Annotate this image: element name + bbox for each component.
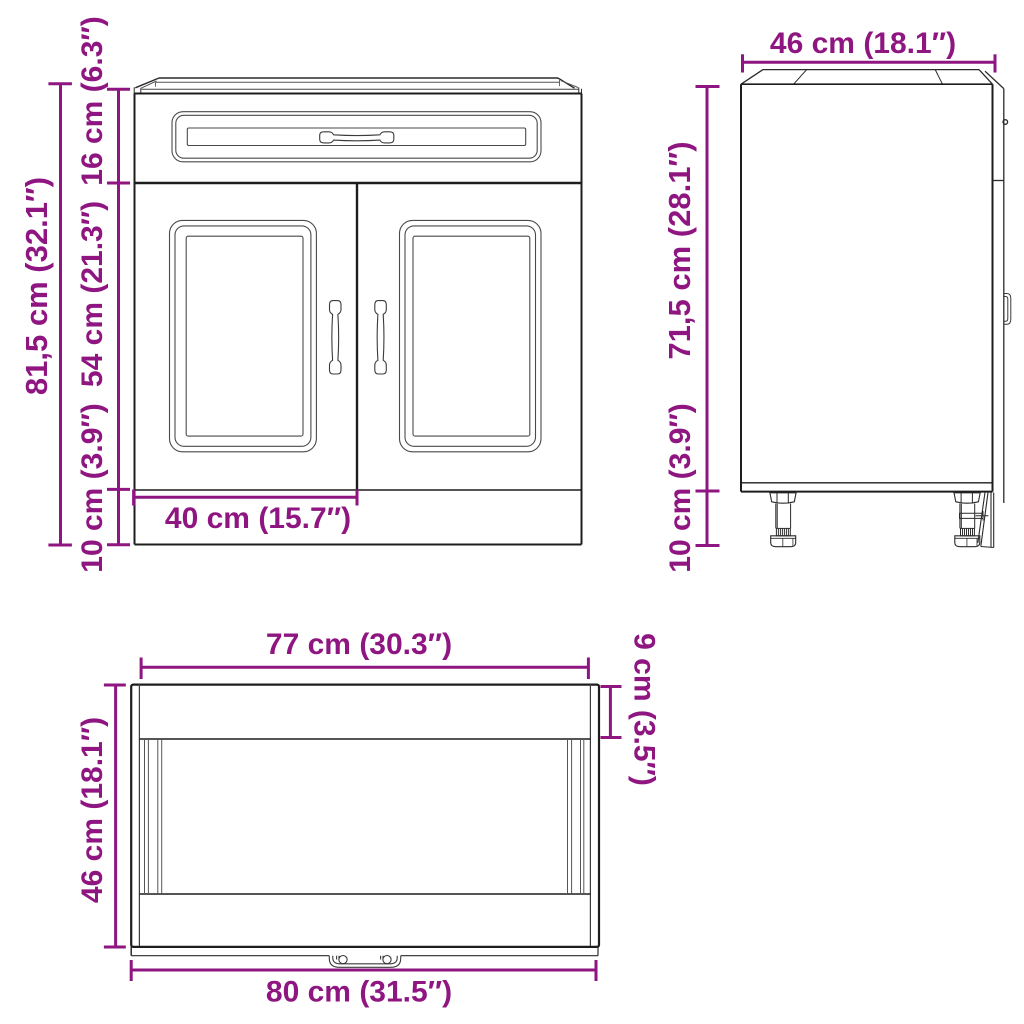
svg-text:54 cm (21.3″): 54 cm (21.3″) xyxy=(76,201,109,387)
svg-text:80 cm (31.5″): 80 cm (31.5″) xyxy=(266,976,452,1009)
svg-text:9 cm (3.5″): 9 cm (3.5″) xyxy=(628,633,661,786)
svg-text:77 cm (30.3″): 77 cm (30.3″) xyxy=(266,628,452,661)
svg-text:46 cm (18.1″): 46 cm (18.1″) xyxy=(76,717,109,903)
svg-text:16 cm (6.3″): 16 cm (6.3″) xyxy=(76,16,109,185)
svg-text:81,5 cm (32.1″): 81,5 cm (32.1″) xyxy=(19,177,54,395)
svg-text:46 cm (18.1″): 46 cm (18.1″) xyxy=(770,27,956,60)
svg-text:40 cm (15.7″): 40 cm (15.7″) xyxy=(165,502,351,535)
svg-text:10 cm (3.9″): 10 cm (3.9″) xyxy=(76,403,109,572)
svg-text:10 cm (3.9″): 10 cm (3.9″) xyxy=(664,403,697,572)
svg-text:71,5 cm (28.1″): 71,5 cm (28.1″) xyxy=(662,141,697,359)
